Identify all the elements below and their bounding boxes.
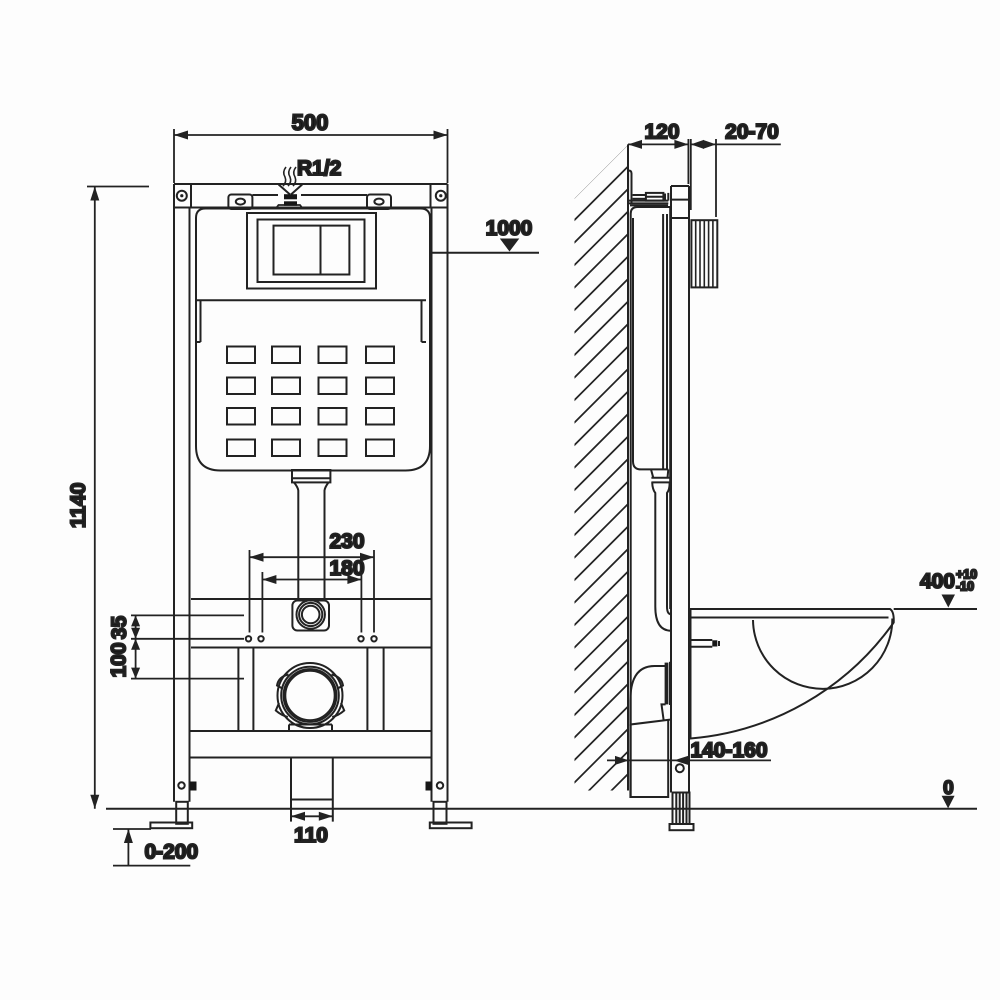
- svg-text:1140: 1140: [67, 483, 90, 529]
- svg-text:400: 400: [920, 570, 955, 593]
- svg-text:140-160: 140-160: [690, 739, 767, 762]
- svg-text:230: 230: [329, 530, 364, 553]
- svg-text:20-70: 20-70: [725, 121, 779, 144]
- svg-text:-10: -10: [956, 580, 974, 594]
- svg-text:35: 35: [108, 616, 131, 640]
- svg-text:110: 110: [294, 824, 328, 847]
- svg-text:180: 180: [329, 557, 364, 580]
- svg-text:100: 100: [108, 642, 131, 677]
- svg-text:1000: 1000: [486, 217, 533, 240]
- svg-text:120: 120: [644, 121, 679, 144]
- svg-text:0-200: 0-200: [144, 841, 198, 864]
- svg-text:500: 500: [292, 110, 329, 135]
- svg-text:0: 0: [943, 778, 954, 799]
- svg-text:R1/2: R1/2: [297, 157, 341, 180]
